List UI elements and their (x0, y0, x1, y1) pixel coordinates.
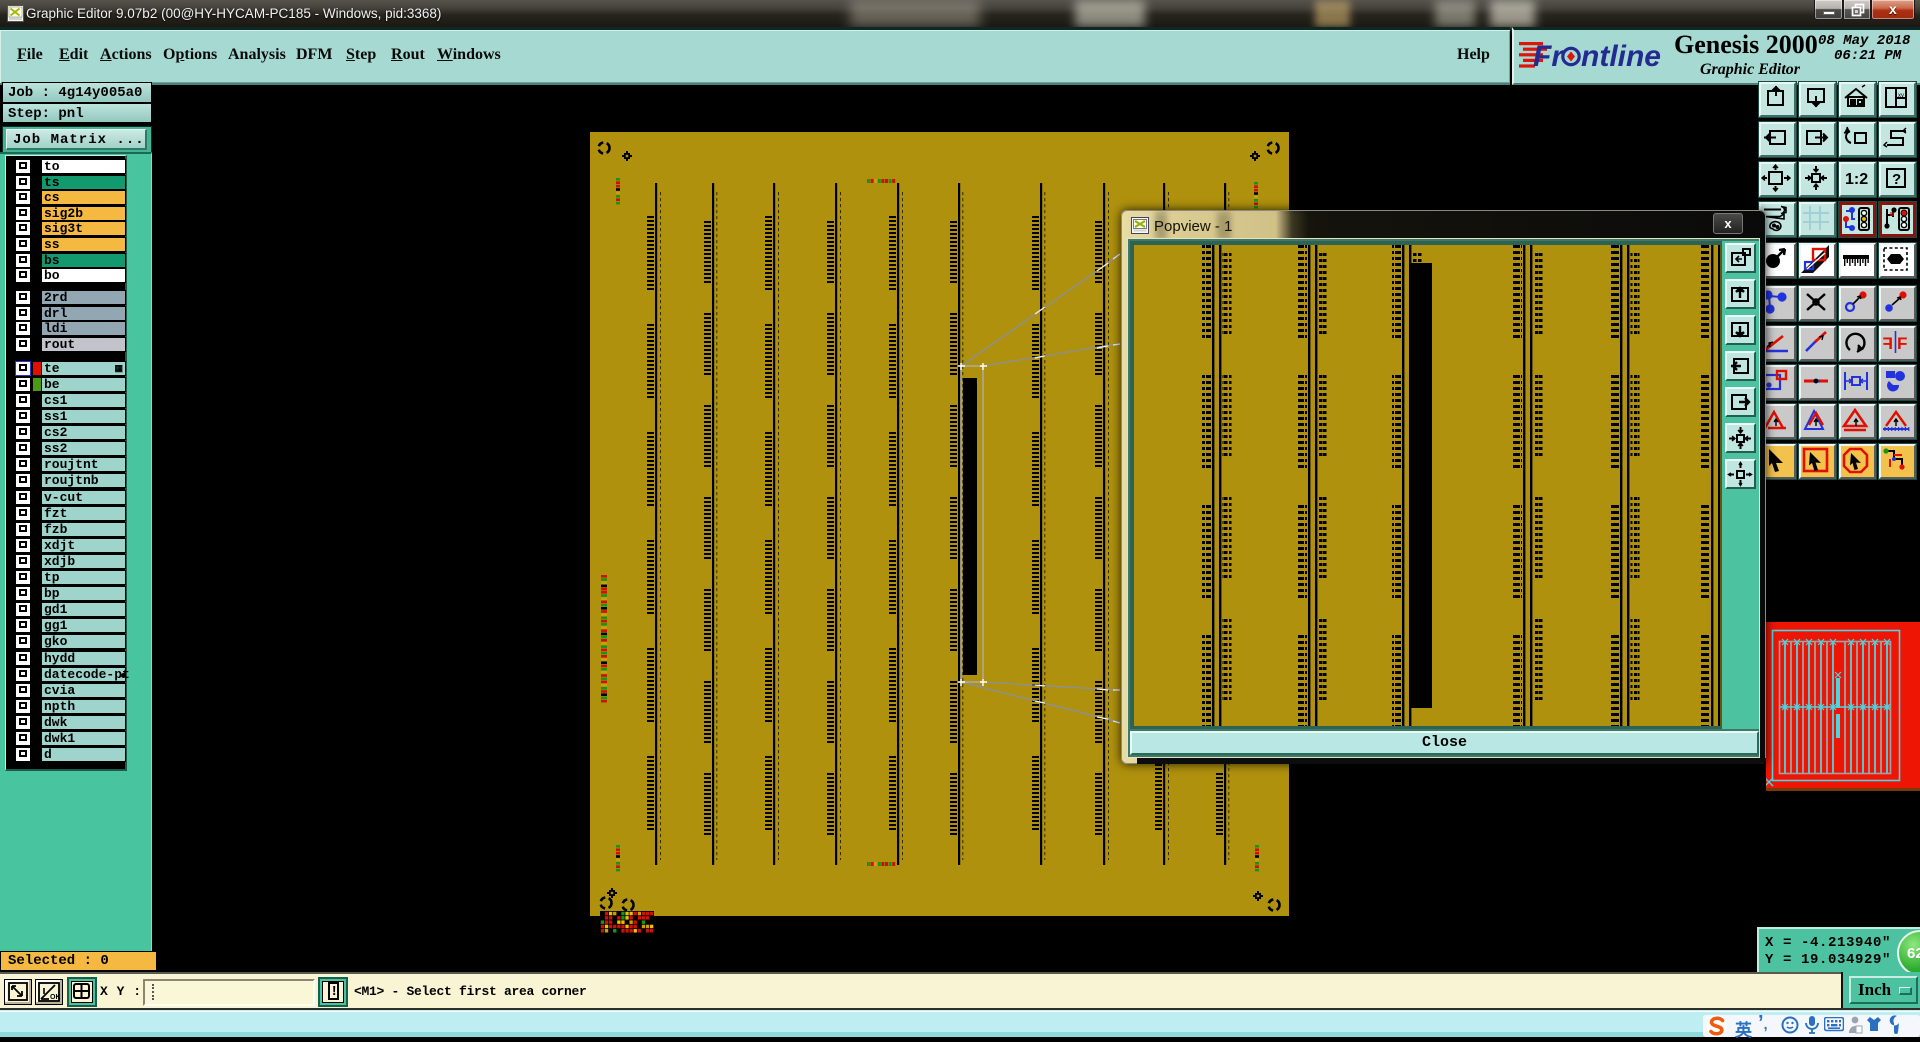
svg-text:Fr: Fr (1533, 40, 1565, 73)
svg-text:?: ? (1892, 171, 1901, 188)
svg-text:1:2: 1:2 (1845, 171, 1868, 188)
svg-text:xy: xy (1898, 93, 1904, 99)
svg-text:ntline: ntline (1581, 40, 1661, 73)
svg-text:F: F (1897, 334, 1907, 353)
svg-text:OK: OK (50, 994, 61, 1001)
svg-text:F: F (1883, 334, 1893, 353)
